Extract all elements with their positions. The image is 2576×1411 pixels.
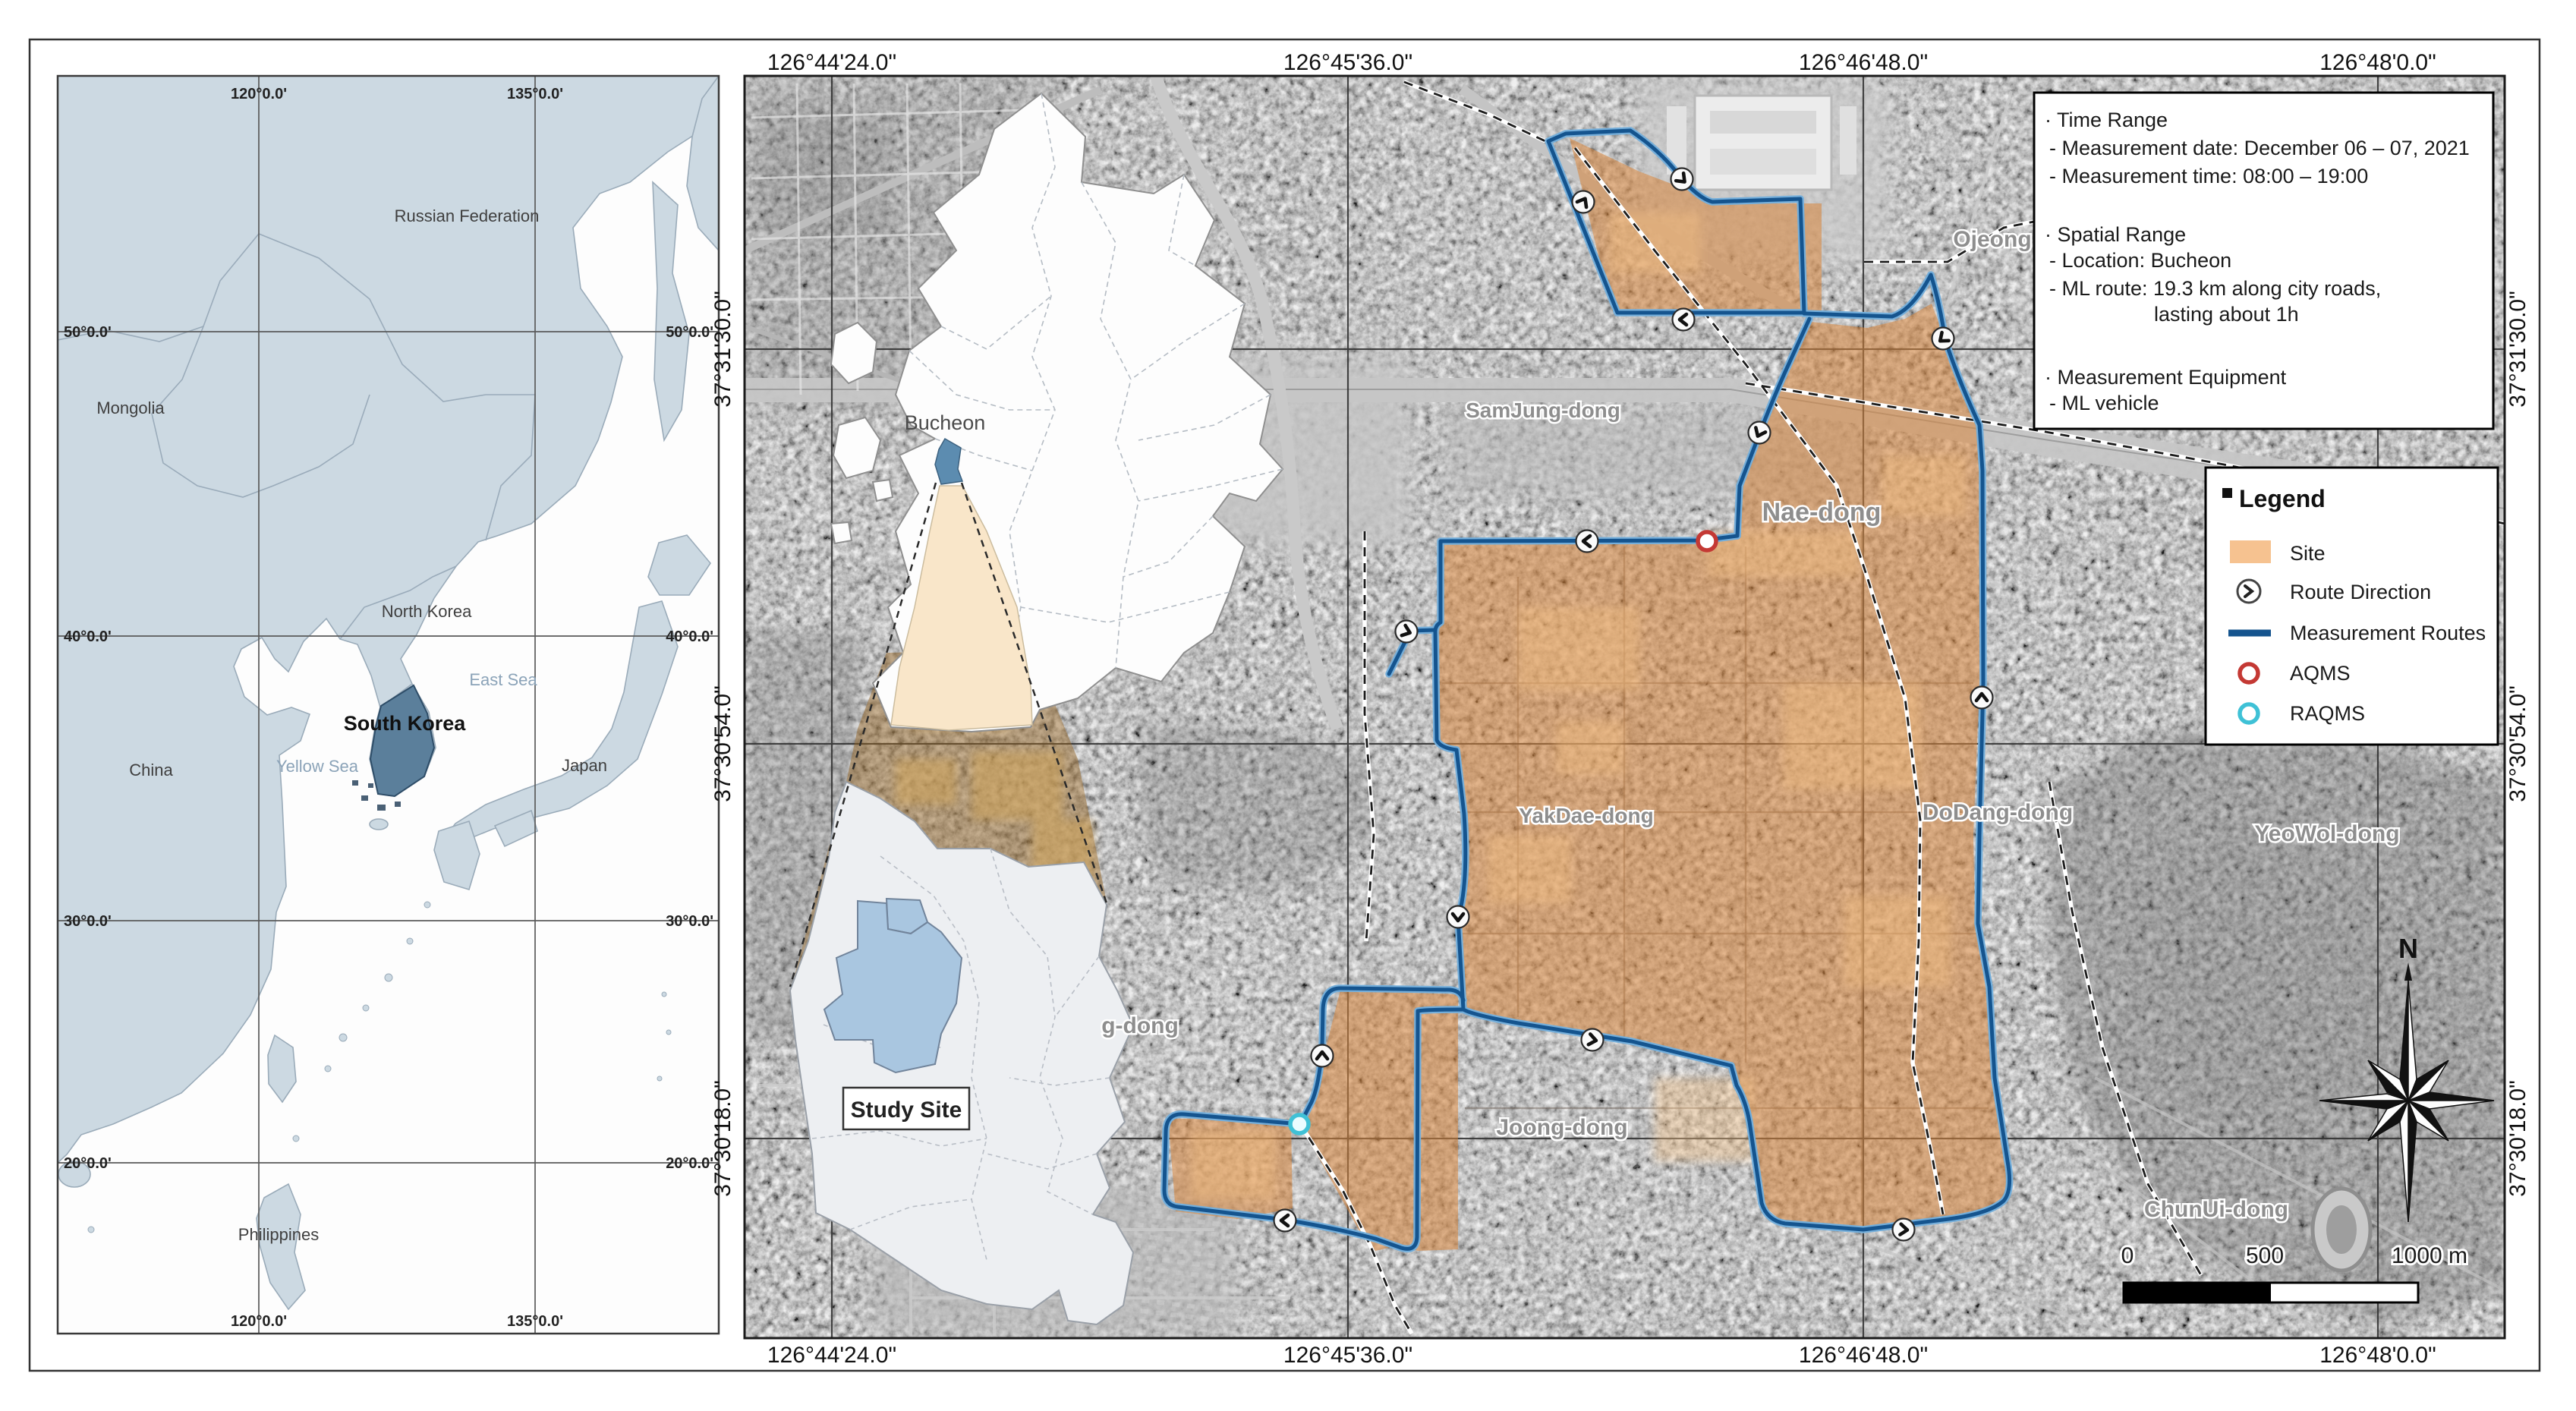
svg-text:g-dong: g-dong <box>1101 1013 1179 1038</box>
svg-text:Measurement Routes: Measurement Routes <box>2290 622 2486 644</box>
svg-text:126°46'48.0": 126°46'48.0" <box>1799 50 1928 75</box>
svg-text:500: 500 <box>2246 1243 2284 1268</box>
svg-text:Route Direction: Route Direction <box>2290 581 2431 603</box>
svg-text:Bucheon: Bucheon <box>905 411 986 434</box>
svg-text:50°0.0': 50°0.0' <box>666 324 713 341</box>
svg-text:1000 m: 1000 m <box>2392 1243 2467 1268</box>
svg-text:126°45'36.0": 126°45'36.0" <box>1283 50 1412 75</box>
svg-text:- ML route: 19.3 km along city: - ML route: 19.3 km along city roads, <box>2049 277 2381 300</box>
svg-text:YeoWol-dong: YeoWol-dong <box>2254 821 2399 846</box>
svg-text:- Measurement date: December 0: - Measurement date: December 06 – 07, 20… <box>2049 137 2470 159</box>
svg-text:East Sea: East Sea <box>469 670 537 689</box>
svg-text:37°30'54.0": 37°30'54.0" <box>710 685 735 802</box>
svg-text:126°45'36.0": 126°45'36.0" <box>1283 1343 1412 1368</box>
svg-text:- Location: Bucheon: - Location: Bucheon <box>2049 249 2231 272</box>
svg-text:· Spatial Range: · Spatial Range <box>2045 223 2186 246</box>
svg-text:Joong-dong: Joong-dong <box>1496 1115 1627 1140</box>
svg-text:RAQMS: RAQMS <box>2290 702 2365 725</box>
svg-text:AQMS: AQMS <box>2290 662 2351 685</box>
svg-text:37°30'54.0": 37°30'54.0" <box>2505 685 2530 802</box>
svg-text:lasting about 1h: lasting about 1h <box>2154 303 2299 326</box>
svg-text:DoDang-dong: DoDang-dong <box>1923 800 2073 825</box>
svg-text:· Measurement Equipment: · Measurement Equipment <box>2045 366 2287 389</box>
svg-text:30°0.0': 30°0.0' <box>64 913 112 930</box>
svg-text:China: China <box>129 761 173 780</box>
svg-text:135°0.0': 135°0.0' <box>507 1313 563 1330</box>
svg-text:North Korea: North Korea <box>382 602 472 621</box>
svg-text:YakDae-dong: YakDae-dong <box>1519 804 1653 827</box>
svg-text:· Time Range: · Time Range <box>2045 109 2168 131</box>
svg-text:Russian Federation: Russian Federation <box>395 206 540 225</box>
svg-text:Japan: Japan <box>562 756 607 775</box>
svg-text:SamJung-dong: SamJung-dong <box>1466 398 1620 422</box>
svg-text:South Korea: South Korea <box>344 712 466 735</box>
svg-text:37°31'30.0": 37°31'30.0" <box>710 291 735 408</box>
svg-text:50°0.0': 50°0.0' <box>64 324 112 341</box>
svg-text:40°0.0': 40°0.0' <box>666 628 713 645</box>
svg-text:- ML vehicle: - ML vehicle <box>2049 392 2159 414</box>
svg-text:- Measurement time: 08:00 – 19: - Measurement time: 08:00 – 19:00 <box>2049 165 2368 187</box>
svg-text:Philippines: Philippines <box>238 1225 319 1244</box>
svg-text:126°48'0.0": 126°48'0.0" <box>2319 1343 2436 1368</box>
svg-text:Site: Site <box>2290 542 2326 565</box>
svg-text:37°31'30.0": 37°31'30.0" <box>2505 291 2530 408</box>
svg-text:ChunUi-dong: ChunUi-dong <box>2144 1197 2288 1222</box>
svg-text:126°44'24.0": 126°44'24.0" <box>767 50 896 75</box>
svg-text:Yellow Sea: Yellow Sea <box>276 757 359 776</box>
svg-text:20°0.0': 20°0.0' <box>64 1155 112 1172</box>
svg-text:126°44'24.0": 126°44'24.0" <box>767 1343 896 1368</box>
svg-text:37°30'18.0": 37°30'18.0" <box>710 1080 735 1197</box>
svg-text:Ojeong: Ojeong <box>1953 227 2031 252</box>
svg-text:Legend: Legend <box>2239 485 2326 512</box>
svg-text:135°0.0': 135°0.0' <box>507 86 563 102</box>
svg-text:126°48'0.0": 126°48'0.0" <box>2319 50 2436 75</box>
svg-text:0: 0 <box>2121 1243 2134 1268</box>
svg-text:Study Site: Study Site <box>851 1098 962 1123</box>
svg-text:N: N <box>2398 933 2418 964</box>
svg-text:Mongolia: Mongolia <box>96 398 165 417</box>
svg-text:Nae-dong: Nae-dong <box>1762 498 1882 527</box>
svg-text:37°30'18.0": 37°30'18.0" <box>2505 1080 2530 1197</box>
svg-text:30°0.0': 30°0.0' <box>666 913 713 930</box>
svg-text:120°0.0': 120°0.0' <box>231 1313 287 1330</box>
svg-text:126°46'48.0": 126°46'48.0" <box>1799 1343 1928 1368</box>
svg-text:120°0.0': 120°0.0' <box>231 86 287 102</box>
svg-text:40°0.0': 40°0.0' <box>64 628 112 645</box>
svg-text:20°0.0': 20°0.0' <box>666 1155 713 1172</box>
